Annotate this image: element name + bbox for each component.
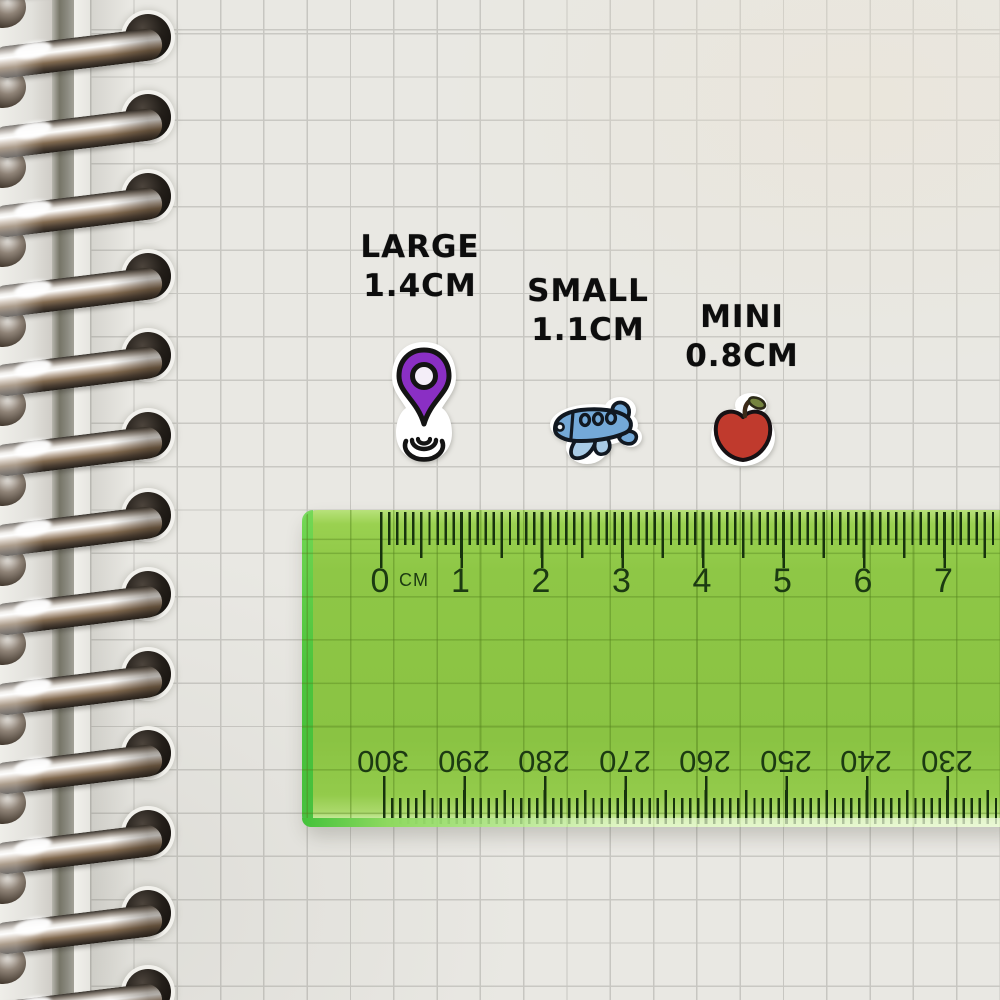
apple-sticker [707, 391, 779, 469]
ruler-mm-number: 250 [760, 743, 812, 779]
ruler-mm-number: 260 [679, 743, 731, 779]
pin-hole [413, 365, 436, 388]
ruler-cm-ticks-top [380, 512, 1000, 568]
ruler-bottom-tick-marks [383, 775, 1000, 827]
green-ruler: 01234567 300290280270260250240230 CM [302, 510, 1000, 827]
ruler-mm-number: 290 [438, 743, 490, 779]
plane-nose-light [556, 423, 563, 430]
plane-window-3 [607, 413, 616, 424]
apple-body [716, 412, 770, 460]
ruler-cm-number: 1 [451, 562, 470, 601]
ruler-unit-label: CM [399, 570, 429, 591]
ruler-top-tick-marks [380, 510, 1000, 570]
ruler-cm-number: 6 [854, 562, 873, 601]
label-mini-size: 0.8CM [662, 337, 822, 376]
ruler-cm-number: 3 [612, 562, 631, 601]
ruler-cm-number: 7 [934, 562, 953, 601]
plane-window-1 [581, 415, 590, 426]
label-mini: MINI 0.8CM [662, 298, 822, 376]
plane-window-2 [594, 414, 603, 425]
label-large-name: LARGE [340, 228, 500, 267]
ruler-mm-number: 270 [599, 743, 651, 779]
airplane-sticker [547, 397, 643, 467]
label-large-size: 1.4CM [340, 267, 500, 306]
plane-cockpit-line [571, 412, 573, 438]
ruler-cm-number: 5 [773, 562, 792, 601]
label-small-name: SMALL [508, 272, 668, 311]
label-small-size: 1.1CM [508, 311, 668, 350]
plane-body [555, 409, 631, 441]
ruler-10mm-ticks-bottom [383, 776, 1000, 824]
ruler-mm-number: 300 [357, 743, 409, 779]
ruler-mm-number: 240 [840, 743, 892, 779]
ruler-cm-number: 4 [693, 562, 712, 601]
label-mini-name: MINI [662, 298, 822, 337]
label-large: LARGE 1.4CM [340, 228, 500, 306]
ruler-cm-number: 2 [532, 562, 551, 601]
location-pin-sticker [388, 340, 460, 464]
ruler-cm-number: 0 [371, 562, 390, 601]
notebook-photo: LARGE 1.4CM SMALL 1.1CM MINI 0.8CM [0, 0, 1000, 1000]
ruler-mm-number: 230 [921, 743, 973, 779]
ruler-mm-number: 280 [518, 743, 570, 779]
label-small: SMALL 1.1CM [508, 272, 668, 350]
